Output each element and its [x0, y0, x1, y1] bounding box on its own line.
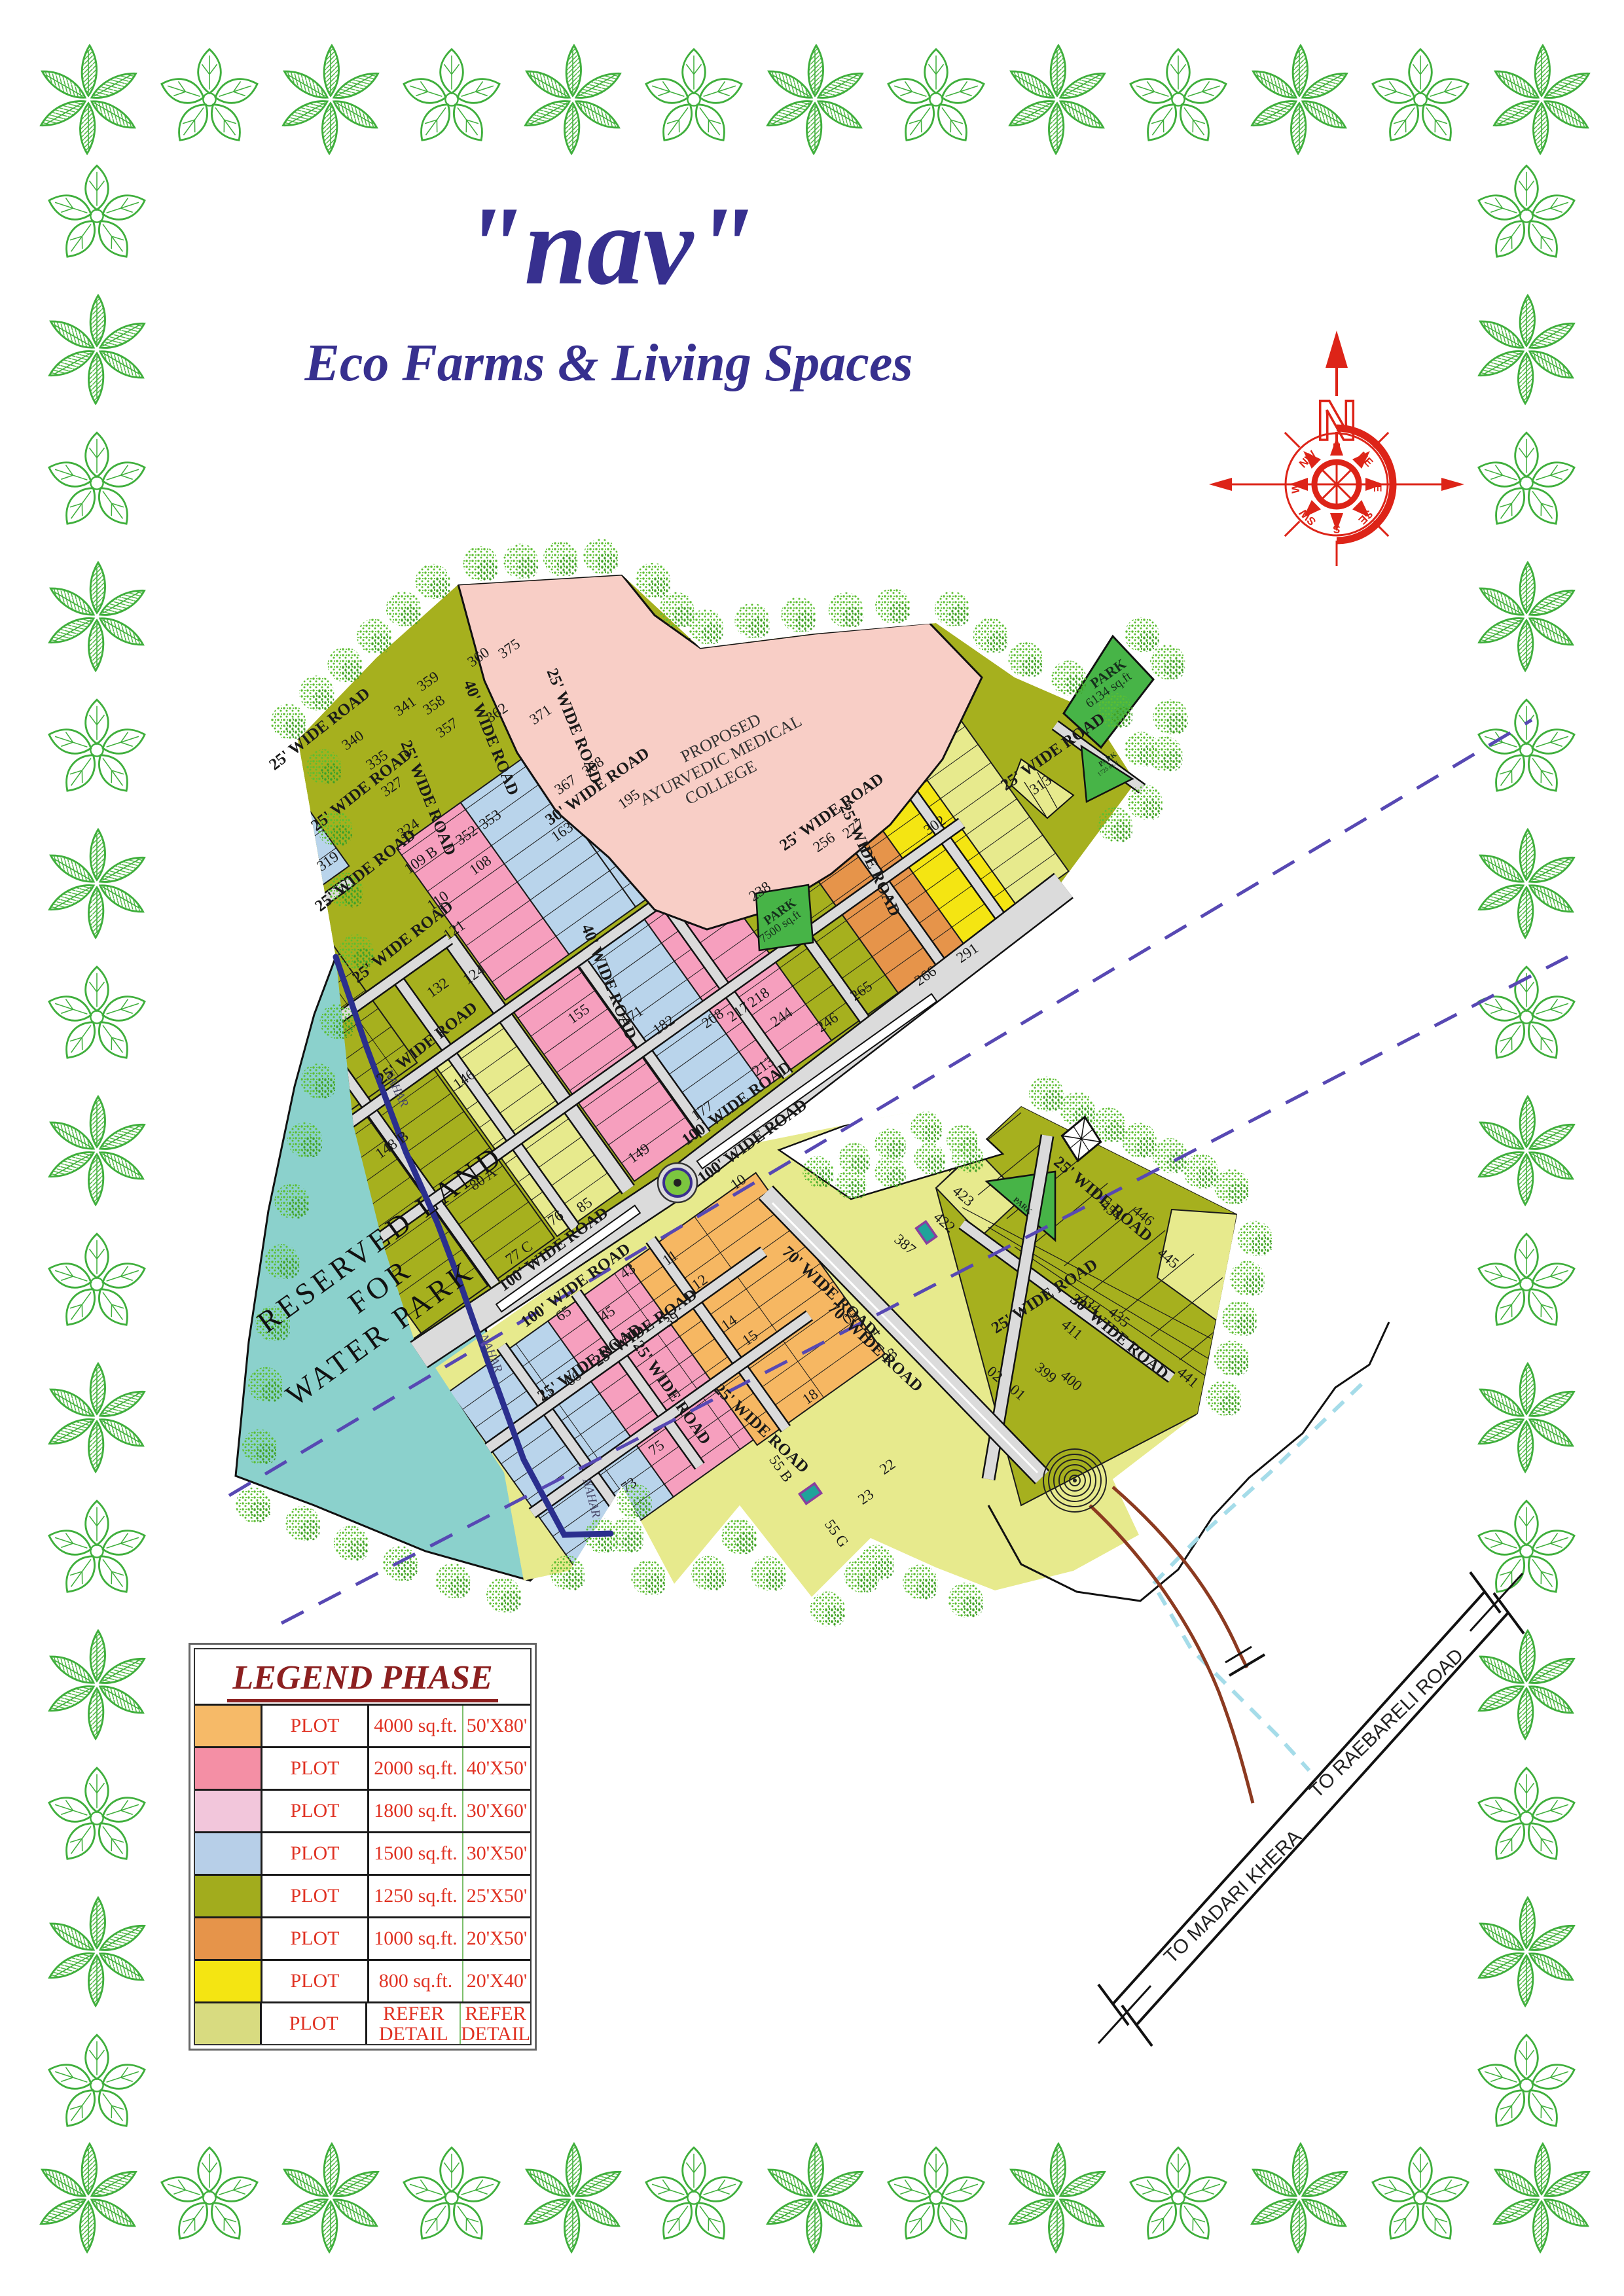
legend-label: PLOT: [262, 1791, 369, 1831]
legend-size: REFER DETAIL: [367, 2003, 461, 2044]
plot-swatch: [195, 2003, 262, 2044]
legend-title: LEGEND PHASE: [195, 1649, 530, 1704]
legend-row: PLOT REFER DETAIL REFER DETAIL: [195, 2001, 530, 2044]
stream: [1153, 1384, 1362, 1770]
access-road: [1090, 1505, 1253, 1803]
compass-point-label: N: [1333, 441, 1341, 454]
legend-label: PLOT: [262, 1961, 369, 2001]
legend-row: PLOT 800 sq.ft. 20'X40': [195, 1959, 530, 2001]
plot-swatch: [195, 1833, 262, 1874]
highway: [1113, 1592, 1485, 2004]
legend-row: PLOT 1500 sq.ft. 30'X50': [195, 1831, 530, 1874]
legend-size: 1250 sq.ft.: [369, 1876, 463, 1916]
destination-label: TO MADARI KHERA: [1160, 1826, 1306, 1968]
compass-point-label: E: [1371, 484, 1384, 492]
plot-swatch: [195, 1918, 262, 1959]
legend-dims: 50'X80': [463, 1706, 530, 1746]
legend-dims: 30'X50': [463, 1833, 530, 1874]
plat-map-poster: "nav" Eco Farms & Living Spaces RESERVED…: [0, 0, 1624, 2296]
legend-size: 800 sq.ft.: [369, 1961, 463, 2001]
page-title: "nav": [281, 190, 936, 302]
legend-dims: 40'X50': [463, 1748, 530, 1789]
compass-point-label: W: [1290, 482, 1302, 493]
legend-size: 1500 sq.ft.: [369, 1833, 463, 1874]
legend-dims: 30'X60': [463, 1791, 530, 1831]
legend-dims: 25'X50': [463, 1876, 530, 1916]
plot-swatch: [195, 1961, 262, 2001]
plot-swatch: [195, 1748, 262, 1789]
legend-size: 4000 sq.ft.: [369, 1706, 463, 1746]
legend-label: PLOT: [262, 2003, 367, 2044]
legend-row: PLOT 2000 sq.ft. 40'X50': [195, 1746, 530, 1789]
legend-row: PLOT 1800 sq.ft. 30'X60': [195, 1789, 530, 1831]
legend-label: PLOT: [262, 1706, 369, 1746]
legend-label: PLOT: [262, 1833, 369, 1874]
plot-swatch: [195, 1876, 262, 1916]
destination-label: TO RAEBARELI ROAD: [1305, 1645, 1468, 1803]
page-subtitle: Eco Farms & Living Spaces: [281, 334, 936, 393]
legend-row: PLOT 1250 sq.ft. 25'X50': [195, 1874, 530, 1916]
legend-size: 2000 sq.ft.: [369, 1748, 463, 1789]
legend-size: 1800 sq.ft.: [369, 1791, 463, 1831]
legend-label: PLOT: [262, 1918, 369, 1959]
legend-label: PLOT: [262, 1748, 369, 1789]
compass-point-label: NE: [1356, 450, 1375, 469]
legend-dims: REFER DETAIL: [461, 2003, 530, 2044]
plot-swatch: [195, 1706, 262, 1746]
plot-swatch: [195, 1791, 262, 1831]
compass: NNNEESESSWWNW: [1209, 331, 1464, 566]
legend-table: LEGEND PHASE PLOT 4000 sq.ft. 50'X80' PL…: [189, 1643, 537, 2051]
legend-row: PLOT 1000 sq.ft. 20'X50': [195, 1916, 530, 1959]
legend-size: 1000 sq.ft.: [369, 1918, 463, 1959]
legend-row: PLOT 4000 sq.ft. 50'X80': [195, 1704, 530, 1746]
legend-label: PLOT: [262, 1876, 369, 1916]
legend-dims: 20'X40': [463, 1961, 530, 2001]
compass-point-label: S: [1333, 523, 1340, 535]
legend-dims: 20'X50': [463, 1918, 530, 1959]
